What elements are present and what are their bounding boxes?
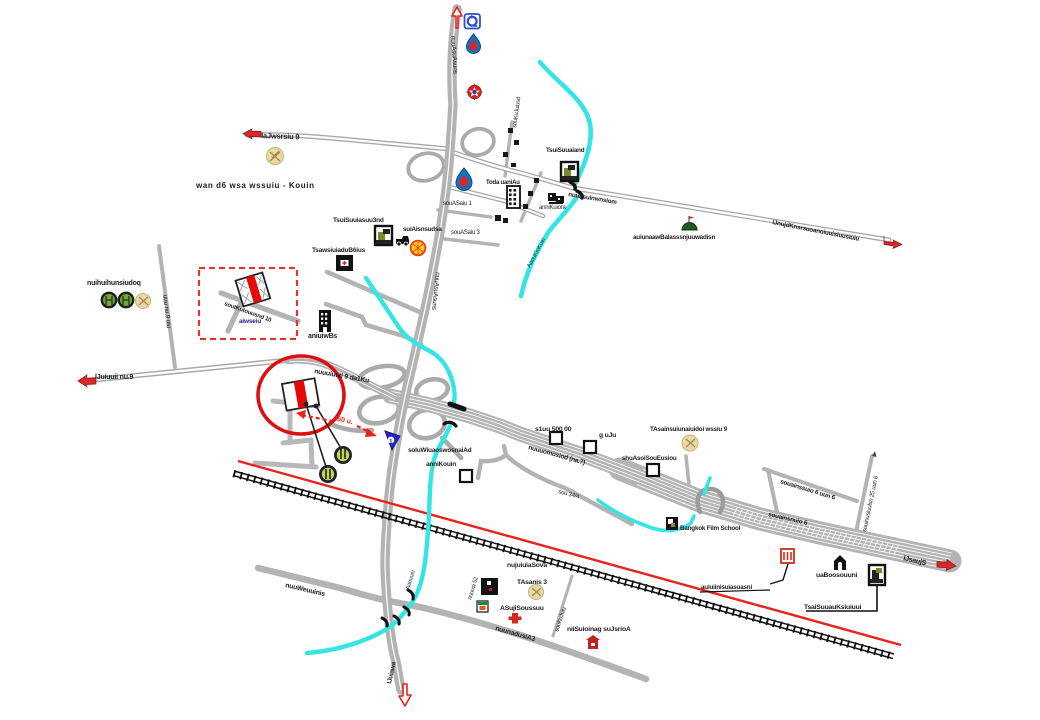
svg-text:TsaiSuuauKsiuiuui: TsaiSuuauKsiuiuui (804, 604, 862, 611)
svg-text:shuAsoiSouEusiou: shuAsoiSouEusiou (622, 455, 677, 462)
svg-text:TsuiSuuiasuu3nd: TsuiSuuiasuu3nd (333, 217, 384, 224)
svg-text:TsawsiuiaduB6ius: TsawsiuiaduB6ius (312, 247, 366, 254)
svg-text:wan d6 wsa wssuiu - Kouin: wan d6 wsa wssuiu - Kouin (195, 181, 315, 190)
svg-text:TAsanis 3: TAsanis 3 (517, 579, 547, 586)
svg-text:1: 1 (389, 439, 393, 446)
svg-text:anniKouin: anniKouin (426, 461, 456, 468)
svg-text:souASaiu 3: souASaiu 3 (451, 230, 481, 236)
svg-text:nuihuihunsiudoq: nuihuihunsiudoq (87, 280, 141, 287)
svg-text:auiunaawBalasssnjuuwadisn: auiunaawBalasssnjuuwadisn (633, 234, 715, 241)
svg-text:souASaiu 1: souASaiu 1 (443, 201, 473, 207)
svg-text:TAsainsuiunaiuidoi wssiu 9: TAsainsuiunaiuidoi wssiu 9 (650, 426, 728, 433)
svg-text:aiwseiu: aiwseiu (239, 318, 261, 325)
svg-text:niiSuioinag suJsrioA: niiSuioinag suJsrioA (567, 626, 631, 633)
svg-text:soluWiuaoswosnaiAd: soluWiuaoswosnaiAd (408, 447, 472, 454)
svg-text:Bangkok Film School: Bangkok Film School (680, 525, 741, 532)
svg-text:anniKuiora: anniKuiora (539, 205, 567, 211)
svg-text:ASujiSoussuu: ASujiSoussuu (500, 605, 544, 612)
svg-text:lJuiuuii nu.9: lJuiuuii nu.9 (95, 374, 134, 381)
svg-text:laJwsrsiu 9: laJwsrsiu 9 (261, 131, 300, 141)
svg-text:uaBoosouuni: uaBoosouuni (816, 572, 858, 579)
svg-text:auiuiinisuiasuasni: auiuiinisuiasuasni (701, 584, 752, 591)
svg-text:g uJu: g uJu (599, 432, 616, 439)
svg-text:TsuiSuuaiand: TsuiSuuaiand (546, 147, 585, 154)
svg-text:nujuiuiaSova: nujuiuiaSova (507, 562, 547, 569)
svg-text:suiAisnsudsa: suiAisnsudsa (403, 226, 442, 233)
svg-text:Toda uaniAu: Toda uaniAu (486, 180, 520, 186)
svg-text:aniuiwBs: aniuiwBs (308, 333, 337, 340)
svg-text:s1uu 500 00: s1uu 500 00 (535, 426, 572, 433)
